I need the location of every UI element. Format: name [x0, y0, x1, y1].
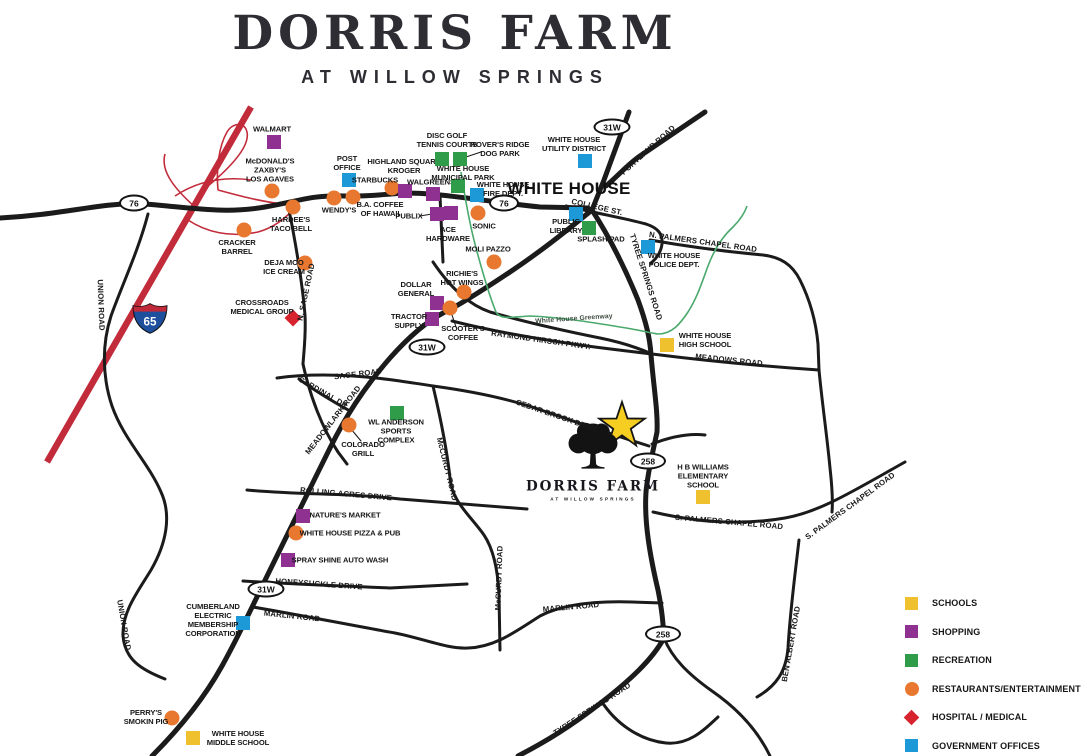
legend-row-shopping: SHOPPING: [903, 618, 1081, 647]
route-shield-31w: 31W: [409, 339, 446, 356]
poi-label-richies-hot-wings: RICHIE'S HOT WINGS: [441, 270, 484, 288]
poi-marker-sonic: [471, 206, 486, 221]
legend-row-government: GOVERNMENT OFFICES: [903, 732, 1081, 756]
poi-marker-moli-pazzo: [487, 255, 502, 270]
legend: SCHOOLSSHOPPINGRECREATIONRESTAURANTS/ENT…: [903, 589, 1081, 756]
poi-label-tractor-supply: TRACTOR SUPPLY: [391, 313, 427, 331]
poi-label-white-house-middle-school: WHITE HOUSE MIDDLE SCHOOL: [207, 730, 269, 748]
poi-label-deja-moo-ice-cream: DEJA MOO ICE CREAM: [263, 259, 305, 277]
legend-icon-medical: [903, 712, 920, 723]
poi-label-white-house-pizza-pub: WHITE HOUSE PIZZA & PUB: [300, 530, 401, 539]
poi-label-rovers-ridge-dog-park: ROVER'S RIDGE DOG PARK: [471, 141, 530, 159]
route-shield-31w: 31W: [248, 581, 285, 598]
poi-marker-white-house-utility-district: [578, 154, 592, 168]
legend-row-recreation: RECREATION: [903, 646, 1081, 675]
legend-icon-restaurants: [903, 682, 920, 696]
poi-label-publix: PUBLIX: [395, 213, 422, 222]
legend-label-shopping: SHOPPING: [932, 627, 980, 637]
legend-label-schools: SCHOOLS: [932, 598, 977, 608]
poi-marker-white-house-middle-school: [186, 731, 200, 745]
poi-label-splash-pad: SPLASH PAD: [577, 236, 624, 245]
poi-label-mcdonalds-zaxbys-los-agaves: McDONALD'S ZAXBY'S LOS AGAVES: [246, 158, 295, 185]
poi-marker-hb-williams-elementary: [696, 490, 710, 504]
legend-icon-shopping: [903, 625, 920, 638]
poi-marker-colorado-grill: [342, 418, 357, 433]
logo-tagline: AT WILLOW SPRINGS: [518, 497, 668, 502]
poi-label-colorado-grill: COLORADO GRILL: [341, 441, 385, 459]
page-title: DORRIS FARM: [188, 6, 722, 61]
legend-square-shopping: [905, 625, 918, 638]
road-label-union-road: UNION ROAD: [96, 279, 107, 331]
poi-label-public-library: PUBLIC LIBRARY: [550, 218, 583, 236]
poi-marker-natures-market: [296, 509, 310, 523]
legend-row-medical: HOSPITAL / MEDICAL: [903, 703, 1081, 732]
dorris-farm-map: DORRIS FARM AT WILLOW SPRINGS WHITE HOUS…: [0, 0, 1087, 756]
svg-text:65: 65: [144, 315, 157, 328]
poi-marker-white-house-high-school: [660, 338, 674, 352]
poi-label-hardees-taco-bell: HARDEE'S TACO BELL: [270, 216, 312, 234]
poi-marker-cracker-barrel: [237, 223, 252, 238]
legend-row-restaurants: RESTAURANTS/ENTERTAINMENT: [903, 675, 1081, 704]
legend-square-schools: [905, 597, 918, 610]
poi-marker-walmart: [267, 135, 281, 149]
poi-label-hb-williams-elementary: H B WILLIAMS ELEMENTARY SCHOOL: [677, 464, 729, 491]
poi-label-ace-hardware: ACE HARDWARE: [426, 226, 470, 244]
poi-label-cumberland-electric: CUMBERLAND ELECTRIC MEMBERSHIP CORPORATI…: [185, 603, 240, 639]
poi-label-white-house-utility-district: WHITE HOUSE UTILITY DISTRICT: [542, 136, 606, 154]
poi-marker-hardees-taco-bell: [286, 200, 301, 215]
route-shield-258: 258: [645, 626, 681, 643]
route-shield-76: 76: [489, 195, 519, 212]
poi-marker-walgreens: [426, 187, 440, 201]
route-shield-76: 76: [119, 195, 149, 212]
poi-marker-scooters-coffee: [443, 301, 458, 316]
legend-square-recreation: [905, 654, 918, 667]
poi-label-cracker-barrel: CRACKER BARREL: [218, 239, 255, 257]
legend-row-schools: SCHOOLS: [903, 589, 1081, 618]
poi-label-wendys: WENDY'S: [322, 207, 356, 216]
page-subtitle: AT WILLOW SPRINGS: [188, 67, 722, 88]
poi-label-spray-shine-auto-wash: SPRAY SHINE AUTO WASH: [292, 557, 389, 566]
poi-label-post-office: POST OFFICE: [333, 155, 360, 173]
legend-label-medical: HOSPITAL / MEDICAL: [932, 712, 1027, 722]
poi-label-perrys-smokin-pig: PERRY'S SMOKIN PIG: [124, 709, 169, 727]
title-block: DORRIS FARM AT WILLOW SPRINGS: [188, 6, 722, 88]
poi-marker-wendys: [327, 191, 342, 206]
interstate-shield-65: 65: [132, 303, 168, 340]
legend-circle-restaurants: [905, 682, 919, 696]
legend-icon-government: [903, 739, 920, 752]
poi-marker-splash-pad: [582, 221, 596, 235]
poi-label-scooters-coffee: SCOOTER'S COFFEE: [441, 325, 485, 343]
route-shield-258: 258: [630, 453, 666, 470]
poi-label-white-house-high-school: WHITE HOUSE HIGH SCHOOL: [679, 332, 731, 350]
legend-label-government: GOVERNMENT OFFICES: [932, 741, 1040, 751]
legend-label-restaurants: RESTAURANTS/ENTERTAINMENT: [932, 684, 1081, 694]
poi-label-walmart: WALMART: [253, 126, 291, 135]
poi-label-starbucks: STARBUCKS: [352, 177, 398, 186]
poi-label-white-house-police-dept: WHITE HOUSE POLICE DEPT.: [648, 252, 700, 270]
poi-marker-publix: [430, 207, 444, 221]
poi-label-natures-market: NATURE'S MARKET: [309, 512, 380, 521]
legend-label-recreation: RECREATION: [932, 655, 992, 665]
poi-label-moli-pazzo: MOLI PAZZO: [465, 246, 510, 255]
route-shield-31w: 31W: [594, 119, 631, 136]
poi-label-dollar-general: DOLLAR GENERAL: [398, 281, 434, 299]
legend-diamond-medical: [904, 709, 920, 725]
poi-label-sonic: SONIC: [472, 223, 496, 232]
poi-label-highland-square-kroger: HIGHLAND SQUARE KROGER: [367, 158, 440, 176]
poi-label-crossroads-medical-group: CROSSROADS MEDICAL GROUP: [230, 299, 293, 317]
poi-label-disc-golf-tennis-courts: DISC GOLF TENNIS COURTS: [417, 132, 478, 150]
legend-icon-schools: [903, 597, 920, 610]
logo-name: DORRIS FARM: [518, 479, 668, 495]
poi-marker-mcdonalds-zaxbys-los-agaves: [265, 184, 280, 199]
legend-square-government: [905, 739, 918, 752]
legend-icon-recreation: [903, 654, 920, 667]
poi-marker-ace-hardware: [444, 206, 458, 220]
